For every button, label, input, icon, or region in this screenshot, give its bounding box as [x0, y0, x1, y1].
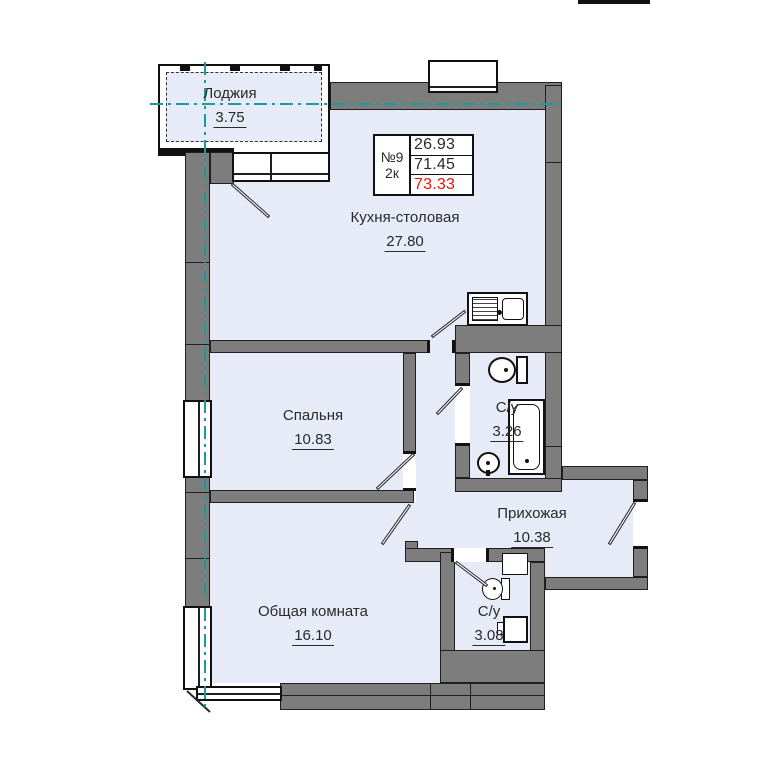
room-area: 3.08 [472, 628, 505, 647]
unit-type: 2к [385, 165, 399, 181]
unit-area-row-total: 73.33 [411, 175, 472, 194]
room-area: 3.26 [490, 424, 523, 443]
unit-number: №9 [381, 149, 404, 165]
floor-plan: Лоджия 3.75 Кухня-столовая 27.80 Спальня… [0, 0, 771, 771]
room-area: 10.38 [511, 530, 553, 549]
unit-areas-cell: 26.93 71.45 73.33 [411, 136, 472, 194]
room-name: Общая комната [258, 603, 368, 620]
room-area: 3.75 [213, 110, 246, 129]
room-name: Прихожая [497, 505, 567, 522]
room-name: С/у [496, 399, 519, 416]
unit-area-row: 71.45 [411, 156, 472, 176]
room-area: 27.80 [384, 234, 426, 253]
room-area: 16.10 [292, 628, 334, 647]
unit-area-row: 26.93 [411, 136, 472, 156]
room-name: С/у [478, 603, 501, 620]
room-name: Кухня-столовая [351, 209, 460, 226]
room-label-bathroom-1: С/у 3.26 [490, 400, 523, 442]
room-label-loggia: Лоджия 3.75 [203, 86, 256, 128]
unit-info-card: №9 2к 26.93 71.45 73.33 [373, 134, 474, 196]
room-label-kitchen: Кухня-столовая 27.80 [351, 210, 460, 252]
unit-id-cell: №9 2к [375, 136, 411, 194]
axis-centerline-vertical [204, 62, 206, 712]
room-label-bathroom-2: С/у 3.08 [472, 604, 505, 646]
room-label-living: Общая комната 16.10 [258, 604, 368, 646]
corner-cut-line [187, 691, 210, 712]
door-swing-lines [0, 0, 771, 771]
room-label-hallway: Прихожая 10.38 [497, 506, 567, 548]
room-label-bedroom: Спальня 10.83 [283, 408, 343, 450]
room-name: Лоджия [203, 85, 256, 102]
room-area: 10.83 [292, 432, 334, 451]
room-name: Спальня [283, 407, 343, 424]
